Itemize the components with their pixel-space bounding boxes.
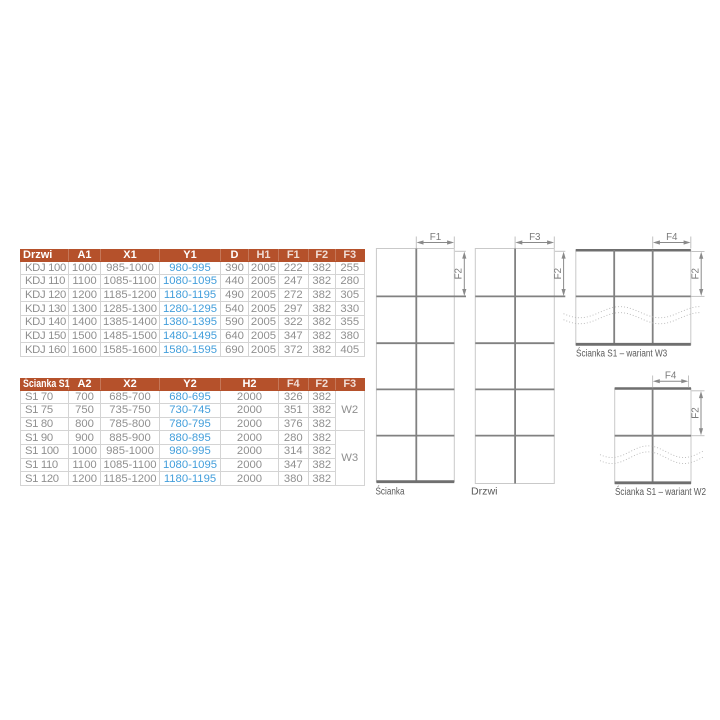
svg-text:F2: F2 — [454, 268, 465, 279]
svg-text:F4: F4 — [666, 232, 678, 243]
svg-text:Ścianka S1 – wariant W3: Ścianka S1 – wariant W3 — [576, 347, 668, 360]
svg-text:Ścianka: Ścianka — [376, 485, 405, 498]
svg-text:Ścianka S1 – wariant W2: Ścianka S1 – wariant W2 — [615, 485, 706, 498]
svg-text:F2: F2 — [691, 268, 702, 279]
svg-text:F2: F2 — [690, 407, 701, 418]
svg-text:F3: F3 — [529, 232, 541, 243]
svg-text:Drzwi: Drzwi — [471, 487, 498, 498]
svg-text:F1: F1 — [430, 232, 441, 243]
svg-text:F2: F2 — [553, 268, 564, 279]
svg-text:F4: F4 — [665, 371, 677, 382]
